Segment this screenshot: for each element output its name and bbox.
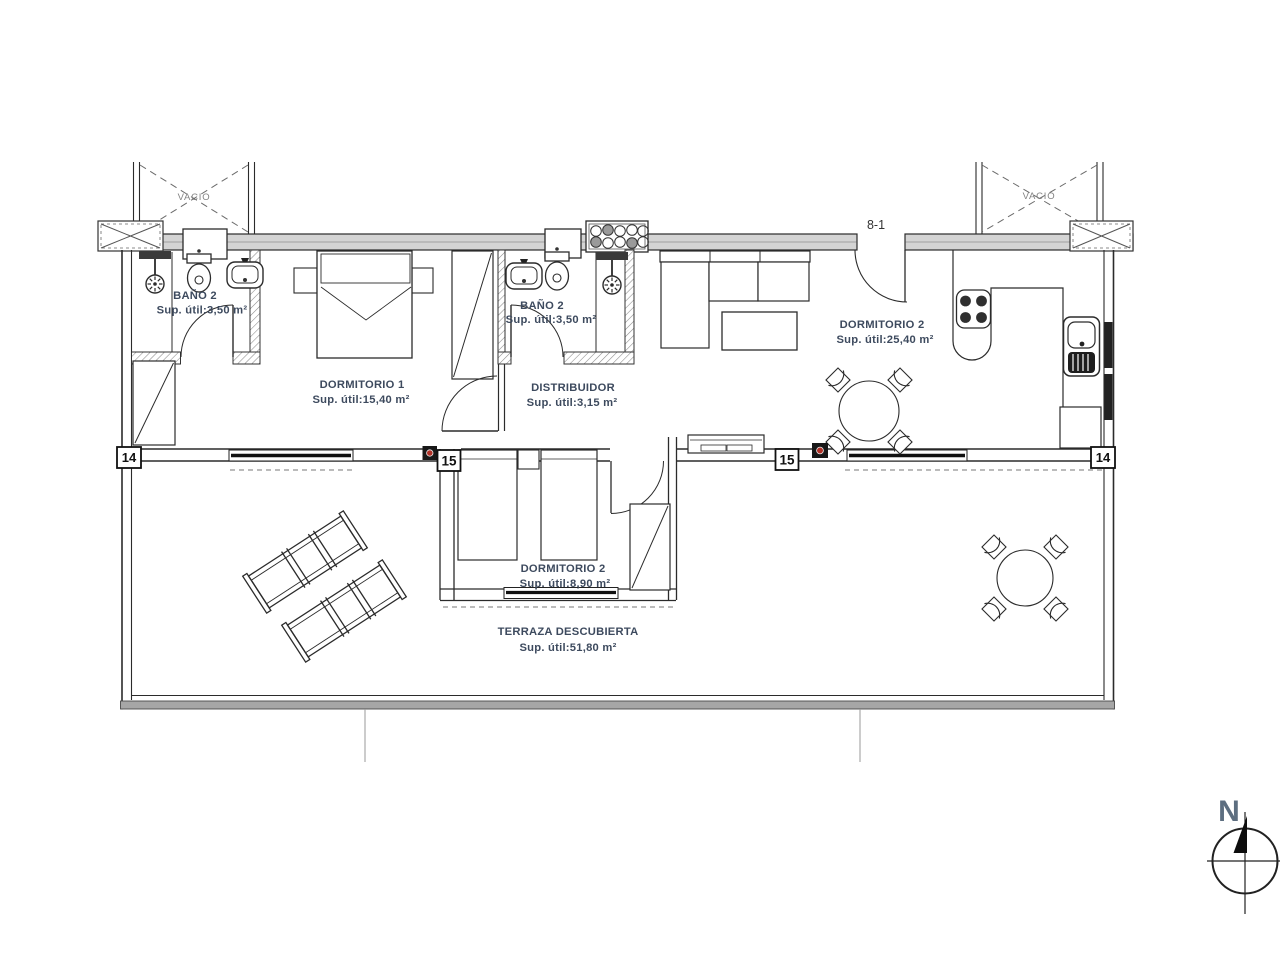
- sun-lounger: [243, 511, 368, 613]
- oven-icon: [1060, 407, 1101, 448]
- room-area: Sup. útil:25,40 m²: [836, 334, 933, 346]
- dining-chair: [1043, 596, 1070, 623]
- dining-chair: [981, 534, 1008, 561]
- kitchen: [953, 250, 1113, 448]
- hall-distribuidor: DISTRIBUIDOR Sup. útil:3,15 m²: [527, 382, 618, 409]
- bed-single: [541, 450, 597, 560]
- door-arc: [442, 376, 498, 431]
- wall: [498, 352, 511, 364]
- room-label: BAÑO 2: [173, 289, 217, 302]
- bed-single: [458, 450, 517, 560]
- dining-table: [997, 550, 1053, 606]
- room-area: Sup. útil:15,40 m²: [312, 394, 409, 406]
- bathroom-left: BAÑO 2 Sup. útil:3,50 m²: [132, 249, 264, 364]
- dining-chair: [1043, 534, 1070, 561]
- room-label: DORMITORIO 1: [320, 379, 405, 391]
- window-sash: [1105, 374, 1113, 420]
- room-label: DORMITORIO 2: [840, 319, 925, 331]
- stone-wall-block: [586, 221, 648, 252]
- living-kitchen-room: DORMITORIO 2 Sup. útil:25,40 m²: [660, 250, 1113, 455]
- nightstand: [518, 450, 539, 469]
- room-label: BAÑO 2: [520, 299, 564, 312]
- room-label: DORMITORIO 2: [521, 563, 606, 575]
- terrace-dining-set: [981, 534, 1070, 623]
- wall: [498, 250, 505, 364]
- marker-14-left: 14: [117, 447, 141, 468]
- door-arc: [511, 305, 563, 357]
- room-area: Sup. útil:8,90 m²: [520, 578, 611, 590]
- marker-14-right: 14: [1091, 447, 1115, 468]
- floor-plan-page: VACIO VACIO: [0, 0, 1280, 960]
- vacio-label-right: VACIO: [1023, 191, 1056, 202]
- room-label: DISTRIBUIDOR: [531, 382, 615, 394]
- shower-icon: [139, 251, 171, 293]
- compass: N: [1207, 795, 1280, 914]
- bathroom-middle: BAÑO 2 Sup. útil:3,50 m²: [498, 247, 634, 364]
- window-right: [847, 450, 967, 461]
- shower-icon: [596, 252, 628, 294]
- dining-chair: [981, 596, 1008, 623]
- wall: [625, 250, 634, 364]
- sink-icon: [506, 259, 542, 289]
- wardrobe: [133, 361, 175, 445]
- wardrobe: [452, 251, 493, 379]
- north-label: N: [1218, 795, 1240, 828]
- marker-15-right: 15: [776, 443, 829, 470]
- coffee-table: [722, 312, 797, 350]
- room-area: Sup. útil:51,80 m²: [519, 642, 616, 654]
- marker-label: 15: [441, 454, 457, 469]
- entry-door-8-1: [855, 234, 907, 302]
- kitchen-sink-icon: [1064, 317, 1100, 376]
- room-area: Sup. útil:3,15 m²: [527, 397, 618, 409]
- symbol-dot: [817, 447, 824, 454]
- marker-label: 14: [1096, 450, 1111, 465]
- dining-table-set: [825, 367, 914, 456]
- room-area: Sup. útil:3,50 m²: [506, 314, 597, 326]
- wardrobe: [630, 504, 670, 590]
- stove-icon: [957, 290, 991, 328]
- room-label: TERRAZA DESCUBIERTA: [498, 626, 639, 638]
- window-sash: [1105, 322, 1113, 368]
- dining-table: [839, 381, 899, 441]
- window-left: [229, 450, 353, 461]
- bed-double: [294, 251, 433, 358]
- sun-lounger: [282, 560, 407, 662]
- wall: [233, 352, 260, 364]
- vacio-label-left: VACIO: [178, 192, 211, 203]
- bedroom-2-small: DORMITORIO 2 Sup. útil:8,90 m²: [440, 437, 677, 601]
- toilet-icon: [545, 247, 569, 290]
- insulated-wall-block-right: [1070, 221, 1133, 251]
- sideboard: [688, 435, 764, 453]
- toilet-icon: [187, 249, 211, 292]
- room-area: Sup. útil:3,50 m²: [157, 305, 248, 317]
- symbol-dot: [427, 450, 433, 456]
- marker-label: 15: [779, 453, 795, 468]
- door-ref-label: 8-1: [867, 218, 885, 232]
- marker-label: 14: [122, 450, 137, 465]
- sink-icon: [227, 258, 263, 288]
- marker-15-left: 15: [423, 446, 461, 471]
- nightstand: [294, 268, 317, 293]
- insulated-wall-block-left: [98, 221, 163, 251]
- nightstand: [412, 268, 433, 293]
- floor-plan-drawing: VACIO VACIO: [0, 0, 1280, 960]
- wall: [564, 352, 634, 364]
